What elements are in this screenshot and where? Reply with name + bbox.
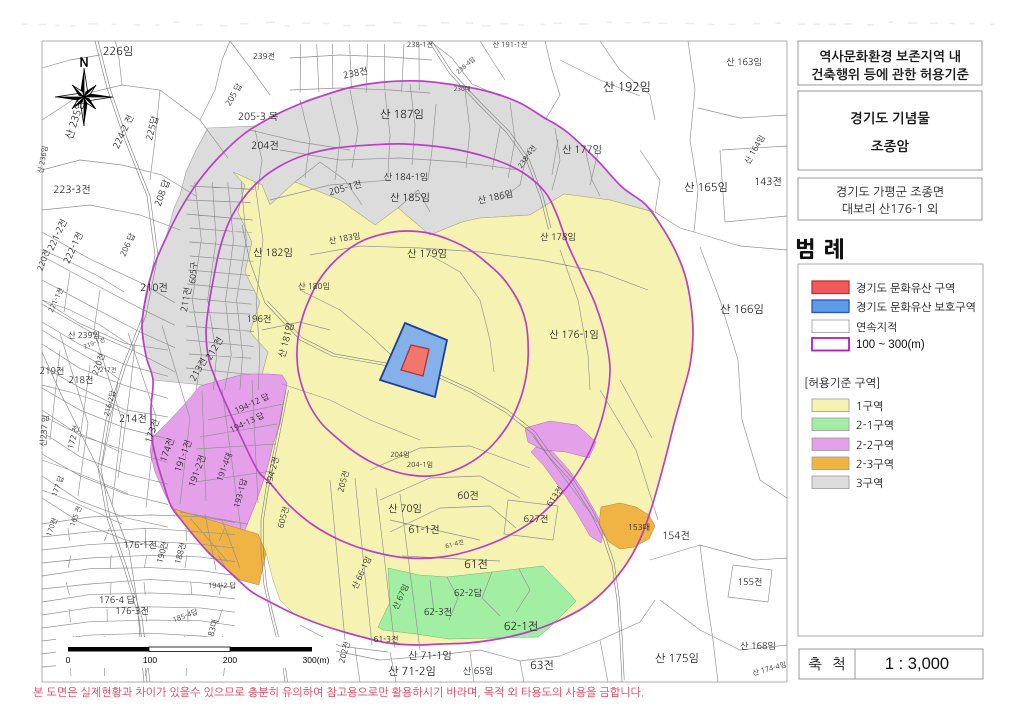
svg-text:100 ~ 300(m): 100 ~ 300(m): [856, 339, 925, 351]
svg-text:200: 200: [223, 655, 237, 665]
svg-text:100: 100: [143, 655, 157, 665]
svg-text:1 : 3,000: 1 : 3,000: [885, 655, 949, 673]
svg-text:300(m): 300(m): [303, 655, 330, 665]
svg-text:0: 0: [66, 655, 71, 665]
